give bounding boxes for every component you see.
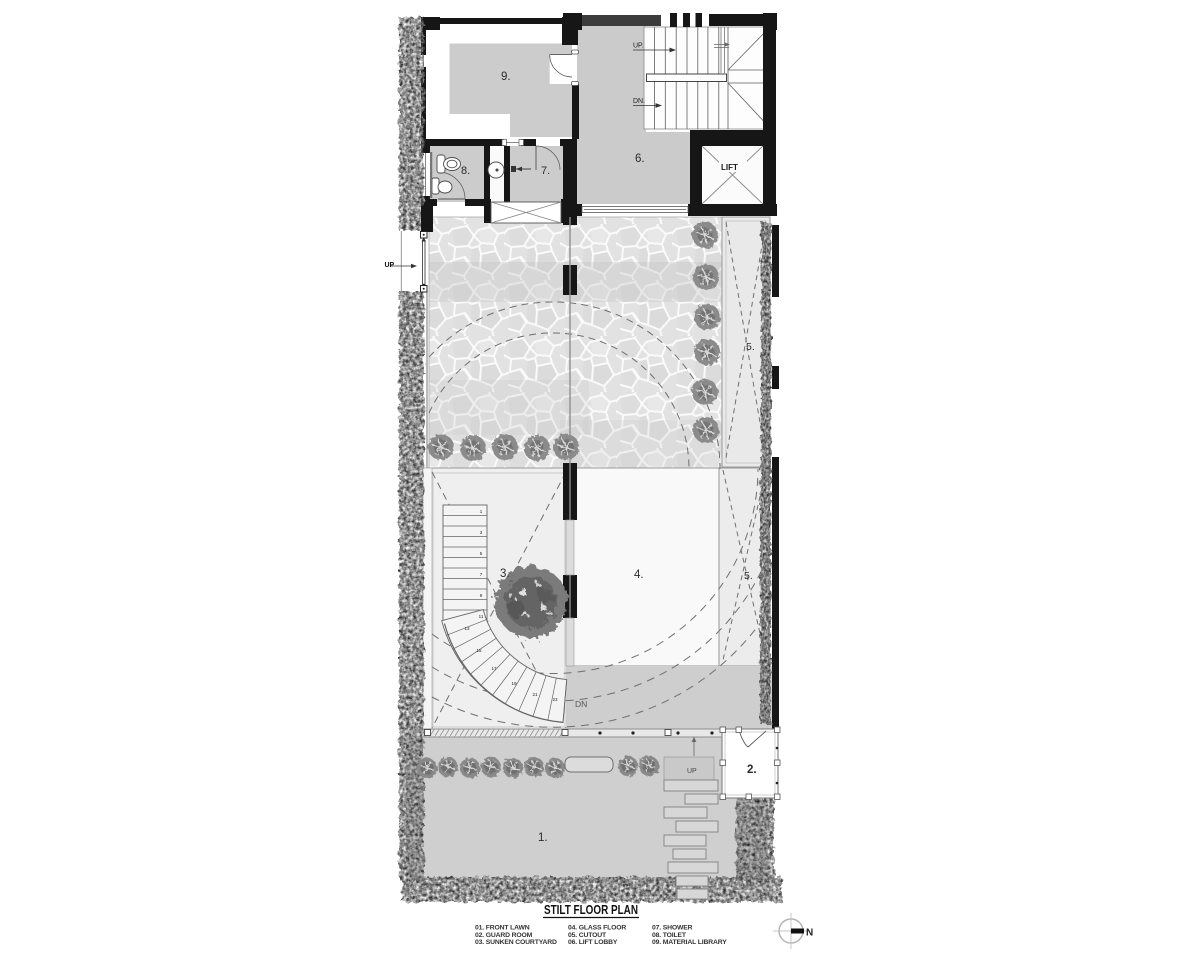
svg-text:03. SUNKEN COURTYARD: 03. SUNKEN COURTYARD <box>475 939 557 946</box>
svg-text:5.: 5. <box>746 341 755 353</box>
svg-text:LIFT: LIFT <box>721 163 738 172</box>
svg-text:6.: 6. <box>635 153 645 165</box>
svg-text:05. CUTOUT: 05. CUTOUT <box>568 932 607 939</box>
svg-text:DN.: DN. <box>633 98 645 105</box>
svg-text:3.: 3. <box>500 568 510 580</box>
svg-text:21: 21 <box>532 692 538 697</box>
svg-text:2.: 2. <box>747 764 757 776</box>
svg-text:08. TOILET: 08. TOILET <box>652 932 687 939</box>
svg-text:01. FRONT LAWN: 01. FRONT LAWN <box>475 925 530 932</box>
svg-text:1.: 1. <box>538 832 548 844</box>
svg-text:23: 23 <box>552 697 558 702</box>
svg-text:15: 15 <box>476 648 482 653</box>
svg-text:19: 19 <box>511 681 517 686</box>
svg-text:4.: 4. <box>634 569 644 581</box>
svg-text:02. GUARD ROOM: 02. GUARD ROOM <box>475 932 533 939</box>
svg-text:07. SHOWER: 07. SHOWER <box>652 925 693 932</box>
svg-text:7.: 7. <box>541 165 550 177</box>
svg-text:UP: UP <box>687 768 697 775</box>
svg-text:8.: 8. <box>461 165 470 177</box>
svg-text:13: 13 <box>464 626 470 631</box>
svg-text:UP.: UP. <box>633 43 644 50</box>
svg-text:5.: 5. <box>744 570 753 582</box>
svg-text:09. MATERIAL LIBRARY: 09. MATERIAL LIBRARY <box>652 939 727 946</box>
svg-text:9.: 9. <box>501 71 511 83</box>
svg-text:STILT FLOOR PLAN: STILT FLOOR PLAN <box>544 903 638 917</box>
svg-text:06. LIFT LOBBY: 06. LIFT LOBBY <box>568 939 618 946</box>
svg-text:DN: DN <box>575 699 587 709</box>
svg-text:UP: UP <box>385 262 395 269</box>
svg-text:04. GLASS FLOOR: 04. GLASS FLOOR <box>568 925 626 932</box>
svg-text:N: N <box>806 928 813 939</box>
svg-text:11: 11 <box>479 614 484 619</box>
svg-text:17: 17 <box>491 666 497 671</box>
